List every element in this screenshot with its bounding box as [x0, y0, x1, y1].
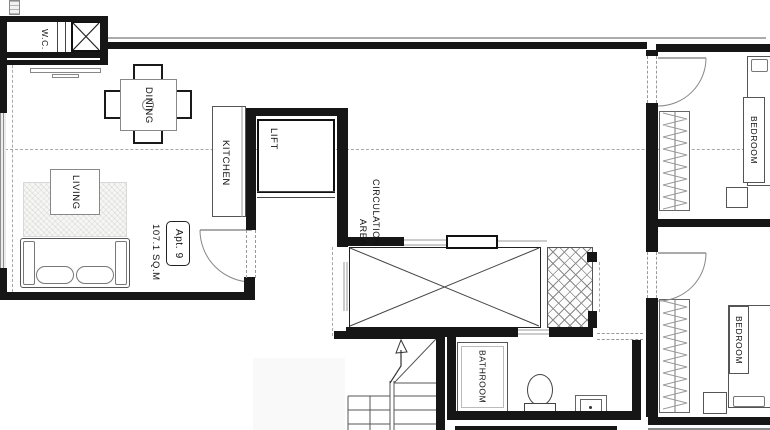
- wall-segment: [646, 298, 658, 306]
- wall-segment: [0, 52, 108, 58]
- sofa-cushion: [76, 266, 114, 284]
- sink-drain: [589, 406, 592, 409]
- wall-segment: [0, 60, 108, 65]
- room-label-kitchen: KITCHEN: [216, 132, 234, 194]
- door-swing-arc-entry: [200, 230, 252, 282]
- wall-segment: [587, 252, 597, 262]
- shaft-right-dashed: [599, 262, 600, 312]
- wall-segment: [646, 306, 658, 417]
- wall-segment: [436, 331, 445, 430]
- door-opening-bathroom: [597, 333, 643, 340]
- wall-segment: [0, 16, 7, 113]
- sofa-arm-right: [115, 241, 127, 285]
- nightstand: [703, 392, 727, 414]
- top-wall-outer-line: [108, 37, 766, 39]
- duct-box: [71, 21, 102, 52]
- scan-blank-patch: [253, 358, 345, 430]
- nightstand: [726, 187, 748, 208]
- room-label-lift: LIFT: [264, 122, 282, 156]
- door-swing-arc-bedroom-bottom: [658, 253, 706, 301]
- room-label-dining: DINING: [137, 74, 159, 136]
- beam-over: [446, 235, 498, 249]
- wall-segment: [588, 311, 597, 328]
- wall-segment: [334, 331, 445, 339]
- stair-treads: [348, 339, 436, 430]
- wall-segment: [455, 426, 617, 430]
- window-left: [0, 113, 6, 268]
- lift-door: [257, 191, 335, 198]
- console-table: [30, 68, 101, 73]
- door-opening-bedroom-bottom: [647, 252, 657, 298]
- wall-segment: [246, 108, 348, 116]
- apartment-number-badge: Apt. 9: [166, 221, 190, 266]
- wall-segment: [656, 219, 770, 227]
- wall-segment: [337, 108, 348, 247]
- wall-segment: [244, 277, 255, 300]
- room-label-wc: W.C.: [36, 24, 54, 54]
- sofa-arm-left: [23, 241, 35, 285]
- room-label-living: LIVING: [50, 169, 100, 215]
- sofa-cushion: [36, 266, 74, 284]
- axis-line-vertical-left: [12, 55, 13, 292]
- console-table-leg: [52, 74, 79, 78]
- wall-segment: [656, 44, 770, 52]
- apartment-area-label: 107.1 SQ.M: [146, 220, 164, 284]
- wc-partition-line: [65, 22, 66, 52]
- door-swing-arc-bedroom-top: [658, 58, 706, 106]
- wall-segment: [632, 340, 641, 415]
- stair-arrow-head: [396, 340, 407, 353]
- sofa: [20, 238, 130, 288]
- door-opening-bedroom-top: [647, 56, 657, 103]
- stair-direction-arrow: [390, 350, 401, 383]
- bed-pillow: [733, 396, 765, 407]
- room-label-bedroom-top: BEDROOM: [743, 97, 765, 183]
- wc-partition-line: [57, 22, 58, 52]
- wardrobe: [659, 299, 690, 413]
- door-opening-entry: [246, 230, 256, 278]
- wall-segment: [648, 417, 770, 425]
- room-label-bedroom-bottom: BEDROOM: [729, 306, 749, 374]
- stair-boundary-dashed: [332, 247, 333, 336]
- floor-plan: W.C. DINING LIVING Apt. 9 107.1 SQ.M KIT…: [0, 0, 770, 430]
- bed-pillow: [751, 59, 768, 72]
- wardrobe: [659, 111, 690, 211]
- wall-segment: [549, 327, 593, 337]
- room-label-bathroom: BATHROOM: [457, 342, 508, 412]
- wall-segment: [246, 108, 256, 230]
- wall-segment: [447, 411, 641, 420]
- wall-segment: [646, 103, 658, 111]
- room-label-circulation: CIRCULATION AREA: [350, 156, 388, 248]
- wall-segment: [2, 16, 106, 22]
- wall-segment: [646, 111, 658, 252]
- wall-segment: [447, 336, 456, 420]
- wall-segment: [104, 42, 647, 49]
- shaft-void: [349, 247, 541, 328]
- wall-hatch-stub: [9, 0, 20, 15]
- toilet-bowl: [527, 374, 553, 406]
- wall-segment: [0, 292, 252, 300]
